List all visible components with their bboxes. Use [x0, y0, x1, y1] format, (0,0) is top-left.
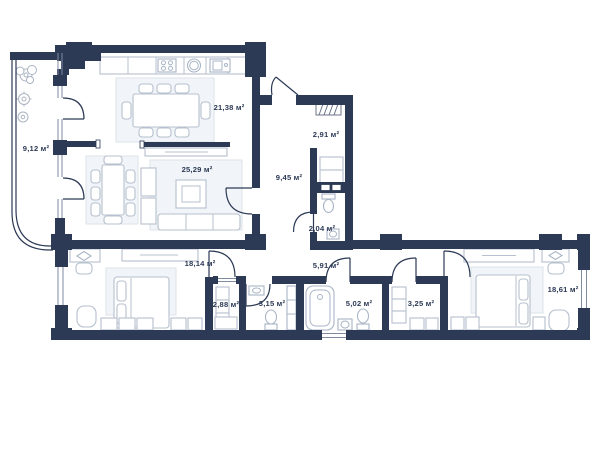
- floor-plan-screenshot: 9,12 м² 21,38 м² 25,29 м² 2,91 м² 9,45 м…: [0, 0, 600, 450]
- desk-chair: [76, 263, 92, 274]
- pillow: [117, 281, 126, 301]
- wardrobe: [464, 249, 534, 262]
- chair: [104, 156, 122, 164]
- balcony-top-wall: [10, 52, 58, 60]
- storage-room-contents: [316, 104, 343, 183]
- stove-icon: [158, 59, 176, 72]
- bedroom-left-furniture: [70, 249, 202, 330]
- room-label-hallway: 9,45 м²: [276, 173, 303, 182]
- toilet-icon: [357, 309, 369, 330]
- window: [58, 86, 62, 98]
- room-label-bathroom-left: 3,15 м²: [259, 299, 286, 308]
- washbasin-icon: [249, 286, 264, 295]
- chair: [126, 203, 135, 216]
- balcony-glazing-inner: [16, 60, 53, 246]
- column-right-wall: [345, 95, 353, 248]
- shower-icon: [287, 286, 296, 330]
- chair: [175, 128, 189, 137]
- bottom-wall: [346, 330, 590, 340]
- toilet-icon: [322, 194, 335, 213]
- storage-box: [119, 318, 135, 330]
- balcony-door-kitchen: [63, 98, 84, 119]
- bath-wardrobe-divider: [382, 284, 389, 330]
- plant-icon: [18, 112, 28, 122]
- coffee-table: [176, 180, 206, 208]
- window: [58, 155, 62, 177]
- wall-step-detail: [61, 61, 85, 69]
- storage-box: [466, 317, 479, 330]
- wall-pier: [539, 234, 562, 250]
- corner-pier: [577, 328, 590, 340]
- storage-box: [137, 318, 153, 330]
- shelf-niche: [332, 185, 341, 191]
- chair: [126, 187, 135, 200]
- wall-segment: [304, 276, 326, 284]
- bed: [476, 275, 530, 327]
- room-label-wardrobe-left: 2,88 м²: [213, 300, 240, 309]
- kitchen-sink-round-icon: [188, 59, 201, 72]
- window: [582, 270, 587, 308]
- room-label-wardrobe-right: 3,25 м²: [408, 299, 435, 308]
- bathroom-left-fixtures: [249, 286, 296, 330]
- shelf-unit: [141, 168, 156, 196]
- bathroom-right-fixtures: [306, 286, 369, 330]
- balcony-door-living: [63, 178, 84, 199]
- wall-pier: [245, 234, 266, 250]
- wing-top-wall-left: [63, 240, 247, 249]
- wardrobe-right-shelving: [392, 287, 438, 330]
- wall-cap: [96, 140, 100, 148]
- wall-pier: [53, 75, 67, 86]
- wing-left-wall: [55, 248, 68, 267]
- balcony-glazing-outer: [12, 60, 53, 250]
- living-hall-wall: [252, 60, 260, 188]
- wall-segment: [272, 276, 304, 284]
- entry-wall: [252, 95, 272, 105]
- chair: [91, 170, 100, 183]
- right-wall: [578, 243, 590, 270]
- shelf-niche: [321, 185, 330, 191]
- chair: [139, 84, 153, 93]
- room-label-bathroom-right: 5,02 м²: [346, 299, 373, 308]
- bathtub-icon: [306, 286, 334, 330]
- armchair: [549, 310, 569, 331]
- kitchen-sink-icon: [210, 59, 230, 72]
- chair: [175, 84, 189, 93]
- pillow: [519, 279, 528, 300]
- window: [58, 199, 62, 218]
- window: [58, 267, 63, 305]
- column-bottom-wall: [310, 241, 353, 250]
- chair: [104, 216, 122, 224]
- storage-top-wall: [296, 95, 353, 105]
- shelf-unit: [320, 170, 343, 183]
- room-label-storage: 2,91 м²: [313, 130, 340, 139]
- room-label-corridor: 5,91 м²: [313, 261, 340, 270]
- storage-box: [171, 318, 186, 330]
- window: [58, 119, 62, 140]
- divider-wall-stub: [65, 141, 98, 147]
- room-label-wc: 2,04 м²: [309, 224, 336, 233]
- wall-segment: [350, 276, 392, 284]
- toilet-icon: [265, 310, 277, 330]
- chair: [157, 84, 171, 93]
- storage-box: [101, 318, 117, 330]
- wall-cap: [140, 141, 144, 148]
- wall-segment: [213, 276, 218, 284]
- bedroom-right-wall: [440, 277, 448, 330]
- desk: [542, 249, 569, 274]
- storage-box: [188, 318, 202, 330]
- sofa: [158, 214, 240, 230]
- wardrobe-bath-divider: [239, 284, 246, 330]
- chair: [91, 187, 100, 200]
- wall-step-detail: [57, 69, 69, 75]
- wardrobe-left-sliding-door: [218, 279, 236, 282]
- wall-pier: [380, 234, 402, 250]
- bottom-wall: [55, 330, 322, 340]
- tv-partition-wall: [142, 142, 230, 147]
- bath-divider: [296, 284, 304, 330]
- chair: [201, 102, 210, 119]
- wardrobe-right-door: [392, 258, 416, 282]
- column-left-wall: [310, 148, 317, 214]
- chair: [139, 128, 153, 137]
- washbasin-icon: [338, 319, 352, 330]
- room-label-kitchen-dining: 21,38 м²: [214, 103, 245, 112]
- armchair: [77, 306, 96, 327]
- entrance-door: [272, 77, 299, 95]
- balcony-plants: [16, 66, 37, 123]
- chair: [126, 170, 135, 183]
- room-label-balcony: 9,12 м²: [23, 144, 50, 153]
- shelf-unit: [141, 198, 156, 224]
- room-label-bedroom-left: 18,14 м²: [185, 259, 216, 268]
- tv-console: [145, 148, 227, 156]
- desk: [70, 249, 100, 274]
- chair: [122, 102, 131, 119]
- wing-left-wall: [55, 305, 68, 330]
- chair: [157, 128, 171, 137]
- wall-step-detail: [57, 53, 101, 61]
- storage-box: [533, 317, 545, 330]
- pillow: [519, 303, 528, 324]
- shelf-unit: [320, 157, 343, 170]
- floor-plan-svg: 9,12 м² 21,38 м² 25,29 м² 2,91 м² 9,45 м…: [0, 0, 600, 450]
- chair: [91, 203, 100, 216]
- room-label-living-room: 25,29 м²: [182, 165, 213, 174]
- plant-icon: [16, 66, 37, 84]
- desk-chair: [548, 263, 564, 274]
- wall-pier: [53, 140, 67, 155]
- storage-box: [451, 317, 464, 330]
- window: [322, 334, 346, 338]
- room-label-bedroom-right: 18,61 м²: [548, 285, 579, 294]
- wall-segment: [236, 276, 246, 284]
- plant-icon: [17, 92, 32, 107]
- radiator-icon: [316, 104, 341, 115]
